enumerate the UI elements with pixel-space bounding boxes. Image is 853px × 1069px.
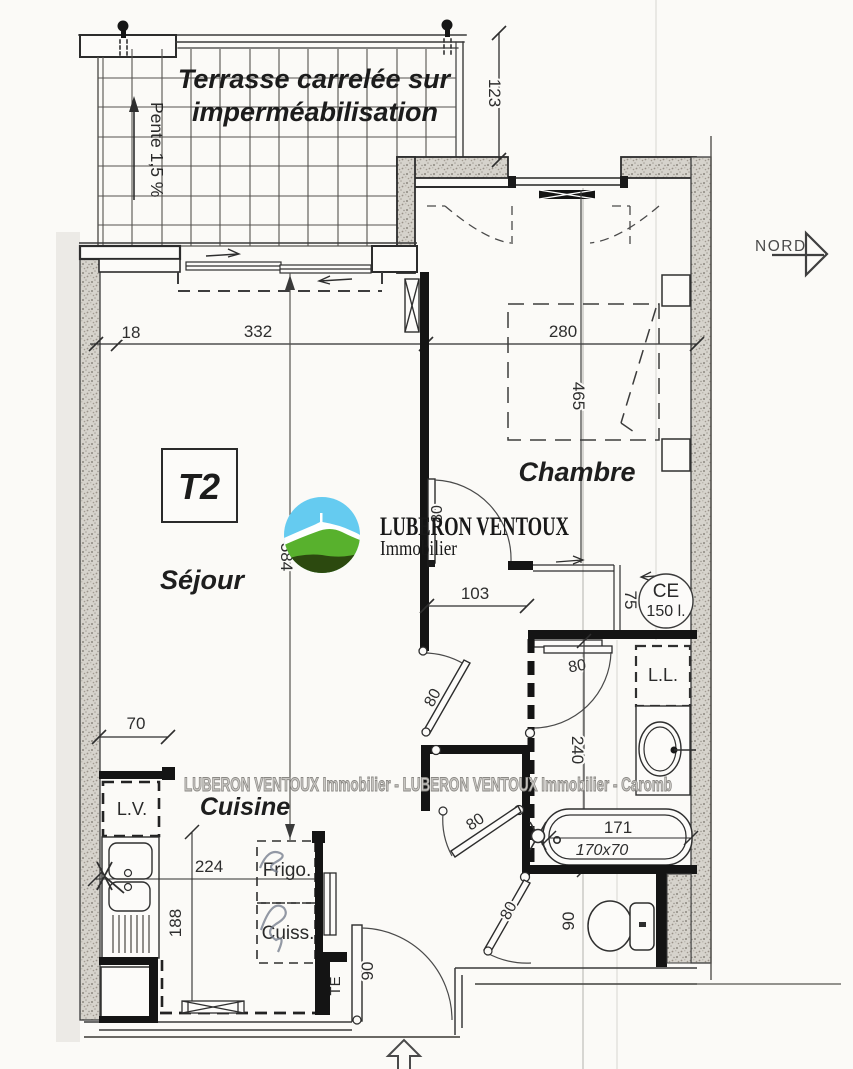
svg-text:Immobilier: Immobilier (380, 536, 457, 560)
svg-text:Frigo.: Frigo. (263, 860, 312, 881)
svg-text:332: 332 (244, 322, 272, 341)
svg-text:90: 90 (358, 962, 377, 981)
svg-text:Pente 1,5 %: Pente 1,5 % (147, 102, 167, 197)
svg-text:T2: T2 (178, 466, 220, 507)
svg-text:103: 103 (461, 584, 489, 603)
svg-text:171: 171 (604, 818, 632, 837)
svg-text:70: 70 (127, 714, 146, 733)
svg-text:Chambre: Chambre (518, 457, 635, 487)
svg-text:170x70: 170x70 (576, 842, 629, 859)
svg-text:NORD: NORD (755, 238, 807, 255)
svg-text:123: 123 (485, 79, 504, 107)
svg-text:150 l.: 150 l. (646, 603, 685, 620)
svg-text:L.L.: L.L. (648, 665, 678, 685)
svg-text:imperméabilisation: imperméabilisation (192, 97, 438, 127)
svg-text:Cuisine: Cuisine (200, 793, 290, 821)
svg-text:90: 90 (559, 912, 578, 931)
svg-text:Terrasse carrelée sur: Terrasse carrelée sur (178, 64, 452, 94)
svg-text:TE: TE (327, 976, 344, 995)
svg-text:Séjour: Séjour (160, 565, 246, 595)
svg-text:280: 280 (549, 322, 577, 341)
svg-text:18: 18 (122, 323, 141, 342)
svg-text:224: 224 (195, 857, 223, 876)
svg-text:465: 465 (569, 382, 588, 410)
svg-text:L.V.: L.V. (117, 799, 147, 819)
svg-text:240: 240 (568, 736, 587, 764)
svg-text:LUBERON VENTOUX Immobilier - L: LUBERON VENTOUX Immobilier - LUBERON VEN… (184, 775, 672, 796)
svg-text:CE: CE (653, 581, 679, 602)
svg-text:75: 75 (621, 591, 640, 610)
svg-text:188: 188 (166, 909, 185, 937)
